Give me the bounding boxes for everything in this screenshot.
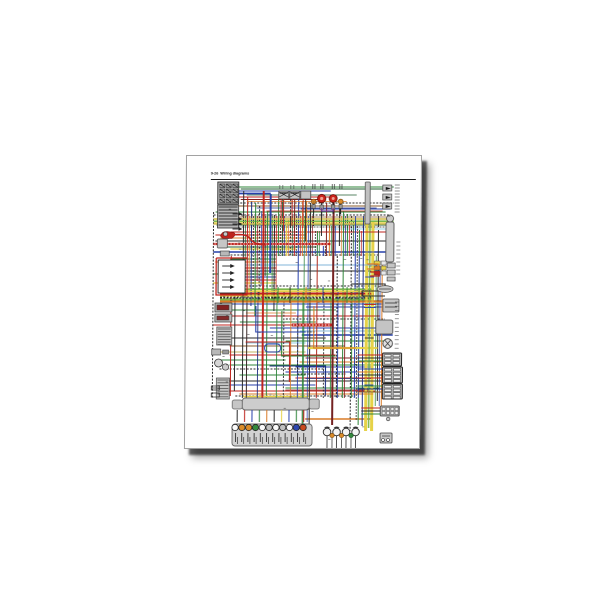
svg-text:9-26 Wiring diagrams: 9-26 Wiring diagrams <box>211 172 249 176</box>
